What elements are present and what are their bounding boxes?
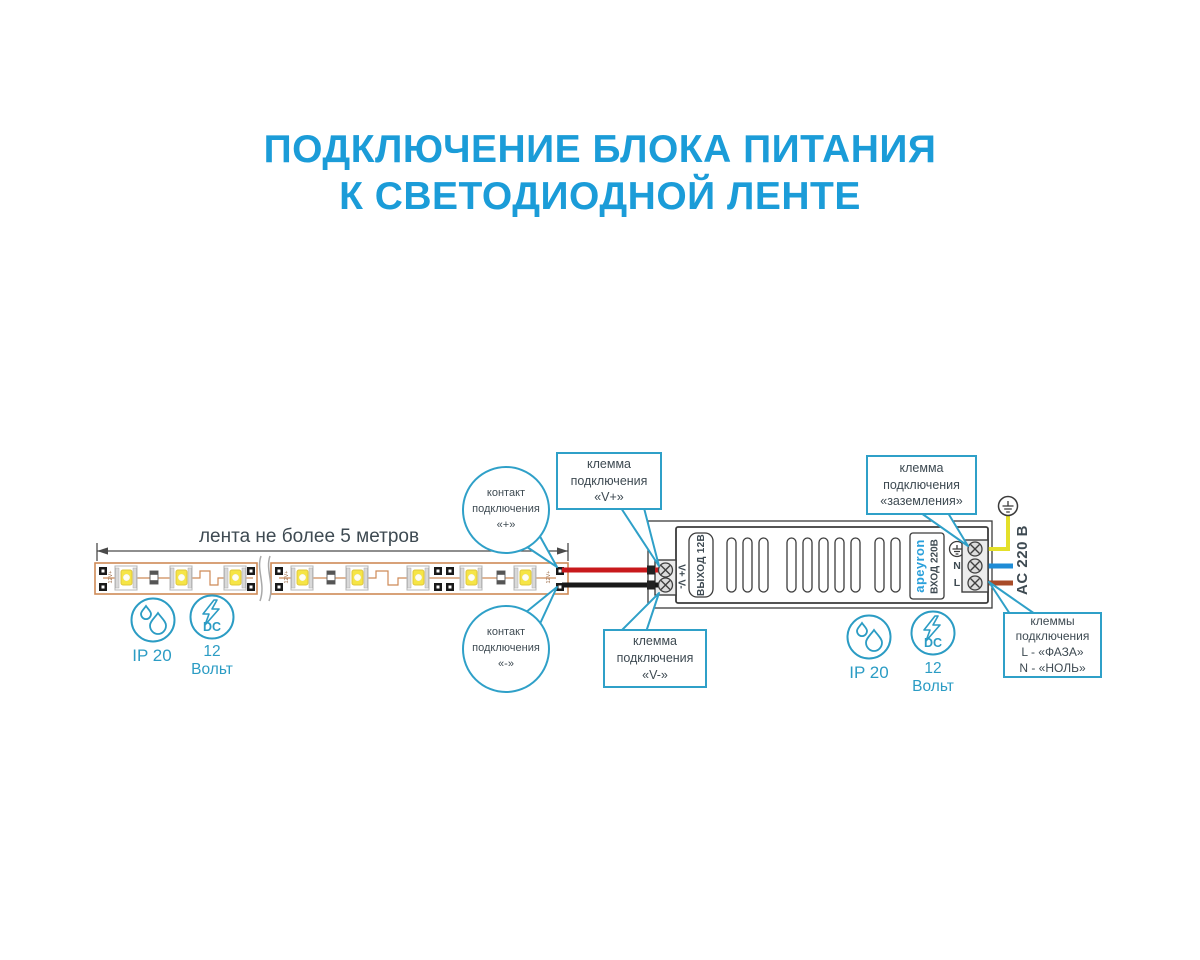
psu-neutral-label: N xyxy=(951,559,963,572)
pad-marking-mid: 12V+ xyxy=(283,564,291,590)
badge-voltage-left-value: 12 xyxy=(187,643,237,660)
callout-terminal-ground: клемма подключения «заземления» xyxy=(866,455,977,515)
ac-voltage-label: AC 220 В xyxy=(1012,500,1032,620)
callout-contact-plus: контакт подключения «+» xyxy=(462,466,550,554)
badge-voltage-right-value: 12 xyxy=(908,660,958,677)
psu-input-label: ВХОД 220В xyxy=(929,532,942,602)
callout-ln-line4: N - «НОЛЬ» xyxy=(1019,661,1085,677)
psu-brand-logo: apeyron xyxy=(911,531,927,601)
badge-ip20-right-icon xyxy=(848,616,891,659)
diagram-canvas: ПОДКЛЮЧЕНИЕ БЛОКА ПИТАНИЯ К СВЕТОДИОДНОЙ… xyxy=(0,0,1200,960)
callout-ln-line3: L - «ФАЗА» xyxy=(1021,645,1083,661)
psu-output-terminal-labels: V+ V- xyxy=(675,557,688,597)
wire-black-ferrule xyxy=(647,581,655,590)
pad-marking-start: 12V+ xyxy=(107,564,115,590)
callout-terminal-vminus: клемма подключения «V-» xyxy=(603,629,707,688)
page-title-line1: ПОДКЛЮЧЕНИЕ БЛОКА ПИТАНИЯ xyxy=(0,126,1200,173)
ac-terminal-screws xyxy=(968,542,982,590)
badge-ip20-left-icon xyxy=(132,599,175,642)
callout-terminals-ln: клеммы подключения L - «ФАЗА» N - «НОЛЬ» xyxy=(1003,612,1102,678)
badge-voltage-right-unit: Вольт xyxy=(898,678,968,695)
callout-contact-minus: контакт подключения «-» xyxy=(462,605,550,693)
callout-ln-line2: подключения xyxy=(1016,629,1090,645)
led-strip xyxy=(95,556,568,601)
wire-red-ferrule xyxy=(647,566,655,575)
badge-dc-right-text: DC xyxy=(915,636,951,649)
badge-voltage-left-unit: Вольт xyxy=(177,661,247,678)
psu-line-label: L xyxy=(951,576,963,589)
callout-ln-line1: клеммы xyxy=(1030,614,1074,630)
psu-output-label: ВЫХОД 12В xyxy=(694,531,708,599)
badge-ip20-right-label: IP 20 xyxy=(829,663,909,682)
callout-terminal-vplus: клемма подключения «V+» xyxy=(556,452,662,510)
page-title-line2: К СВЕТОДИОДНОЙ ЛЕНТЕ xyxy=(0,173,1200,220)
badge-dc-left-text: DC xyxy=(194,620,230,633)
strip-dimension-label: лента не более 5 метров xyxy=(179,527,439,547)
pad-marking-end: 12V+ xyxy=(545,564,553,590)
strip-break-mark xyxy=(260,556,271,601)
tail-terminal-vminus xyxy=(620,593,659,632)
